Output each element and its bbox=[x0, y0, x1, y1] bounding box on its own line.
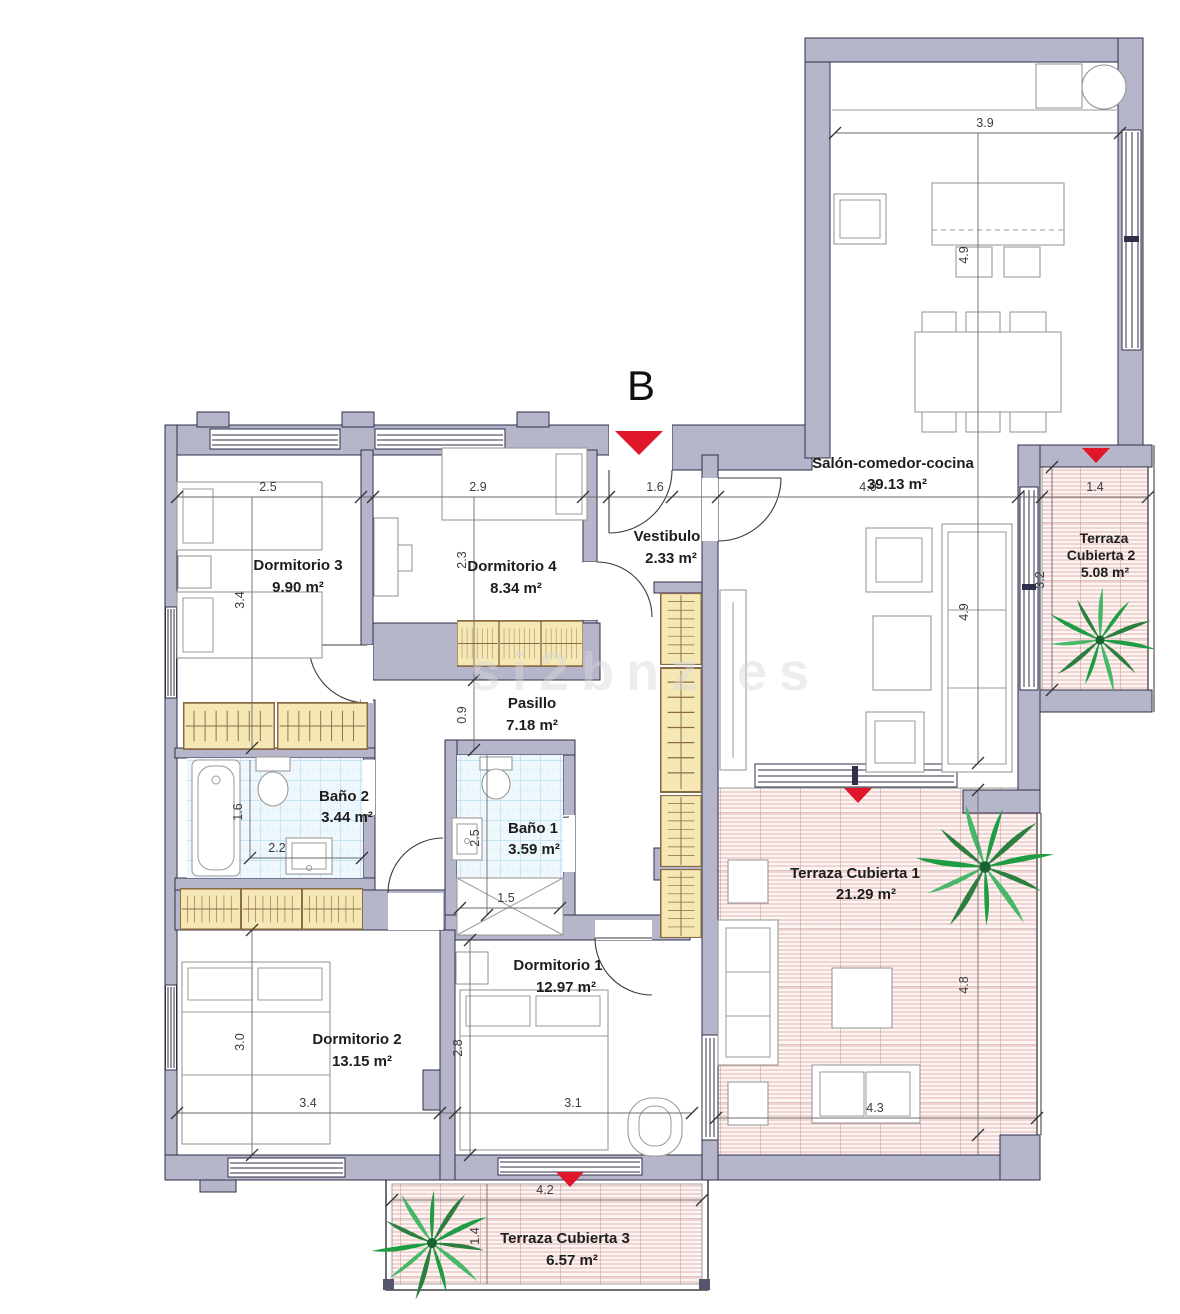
dim-dorm1-height: 2.8 bbox=[451, 1039, 465, 1056]
bed-dorm3-1 bbox=[177, 482, 322, 550]
svg-text:3.44 m²: 3.44 m² bbox=[321, 809, 373, 826]
dining-table bbox=[915, 312, 1061, 432]
kitchen-sink-icon bbox=[1082, 65, 1126, 109]
svg-text:Terraza Cubierta 1: Terraza Cubierta 1 bbox=[790, 865, 920, 882]
svg-text:Salón-comedor-cocina: Salón-comedor-cocina bbox=[812, 455, 974, 472]
sofa-salon bbox=[942, 524, 1012, 772]
dim-terraza1-height: 4.8 bbox=[957, 976, 971, 993]
floor-plan-svg: 2.5 2.9 1.6 4.0 1.4 3.4 3.0 2.3 0.9 2.5 … bbox=[0, 0, 1180, 1314]
armchair-salon-1 bbox=[866, 528, 932, 592]
svg-text:Terraza Cubierta 3: Terraza Cubierta 3 bbox=[500, 1230, 630, 1247]
svg-text:Vestibulo: Vestibulo bbox=[634, 528, 701, 545]
wardrobe-dorm2 bbox=[180, 889, 240, 929]
window-dorm2-left bbox=[166, 985, 177, 1070]
dim-dorm2-width: 3.4 bbox=[299, 1096, 316, 1110]
window-dorm1-right bbox=[702, 1035, 718, 1140]
svg-text:5.08 m²: 5.08 m² bbox=[1081, 564, 1130, 580]
svg-text:Cubierta 2: Cubierta 2 bbox=[1067, 547, 1136, 563]
window-dorm3-left bbox=[166, 607, 177, 698]
window-dorm4 bbox=[375, 429, 505, 449]
window-dorm2-bottom bbox=[228, 1158, 345, 1177]
svg-text:9.90 m²: 9.90 m² bbox=[272, 579, 324, 596]
dim-terraza3-width: 4.2 bbox=[536, 1183, 553, 1197]
nightstand-dorm1 bbox=[456, 952, 488, 984]
dim-dorm3-width: 2.5 bbox=[259, 480, 276, 494]
dim-dorm1-width: 3.1 bbox=[564, 1096, 581, 1110]
dim-terraza2-width: 1.4 bbox=[1086, 480, 1103, 494]
svg-text:12.97 m²: 12.97 m² bbox=[536, 979, 596, 996]
svg-text:Pasillo: Pasillo bbox=[508, 695, 556, 712]
window-salon-terraza1 bbox=[755, 764, 957, 787]
kitchen-appliance bbox=[834, 194, 886, 244]
svg-text:Dormitorio 3: Dormitorio 3 bbox=[253, 557, 342, 574]
bed-dorm2 bbox=[182, 962, 330, 1144]
unit-label: B bbox=[627, 362, 655, 409]
svg-text:21.29 m²: 21.29 m² bbox=[836, 886, 896, 903]
dim-vestibulo-width: 1.6 bbox=[646, 480, 663, 494]
dim-terraza2-height: 3.2 bbox=[1033, 571, 1047, 588]
chair-dorm1 bbox=[628, 1098, 682, 1156]
nightstand-dorm3 bbox=[178, 556, 211, 588]
dim-kitchen-width: 3.9 bbox=[976, 116, 993, 130]
armchair-salon-2 bbox=[866, 712, 924, 772]
sink-bano2-icon bbox=[286, 838, 332, 874]
svg-text:Baño 2: Baño 2 bbox=[319, 788, 369, 805]
svg-text:8.34 m²: 8.34 m² bbox=[490, 580, 542, 597]
svg-text:Dormitorio 4: Dormitorio 4 bbox=[467, 558, 557, 575]
svg-text:2.33 m²: 2.33 m² bbox=[645, 550, 697, 567]
window-dorm3 bbox=[210, 429, 340, 449]
svg-text:Dormitorio 1: Dormitorio 1 bbox=[513, 957, 602, 974]
dim-kitchen-height: 4.9 bbox=[957, 246, 971, 263]
svg-text:6.57 m²: 6.57 m² bbox=[546, 1252, 598, 1269]
dim-bano1-height: 2.5 bbox=[468, 829, 482, 846]
dim-bano2-height: 1.6 bbox=[231, 803, 245, 820]
dim-bano2-width: 2.2 bbox=[268, 841, 285, 855]
svg-text:7.18 m²: 7.18 m² bbox=[506, 717, 558, 734]
dim-dorm2-height: 3.0 bbox=[233, 1033, 247, 1050]
svg-text:Baño 1: Baño 1 bbox=[508, 820, 558, 837]
svg-text:Dormitorio 2: Dormitorio 2 bbox=[312, 1031, 401, 1048]
svg-text:39.13 m²: 39.13 m² bbox=[867, 476, 927, 493]
watermark: si2bnz es bbox=[470, 642, 821, 702]
dim-dorm3-height: 3.4 bbox=[233, 591, 247, 608]
shower-icon bbox=[457, 878, 563, 935]
toilet-bano2-icon bbox=[256, 757, 290, 806]
svg-text:Terraza: Terraza bbox=[1080, 530, 1129, 546]
bed-dorm4 bbox=[442, 448, 587, 520]
floor-plan-page: 2.5 2.9 1.6 4.0 1.4 3.4 3.0 2.3 0.9 2.5 … bbox=[0, 0, 1180, 1314]
bed-dorm3-2 bbox=[177, 592, 322, 658]
wardrobe-dorm3 bbox=[184, 703, 275, 749]
svg-text:3.59 m²: 3.59 m² bbox=[508, 841, 560, 858]
dim-terraza3-height: 1.4 bbox=[468, 1227, 482, 1244]
dim-pasillo-height: 0.9 bbox=[455, 706, 469, 723]
coffee-table-salon bbox=[873, 616, 931, 690]
bed-dorm1 bbox=[460, 990, 608, 1150]
dim-salon-height: 4.9 bbox=[957, 603, 971, 620]
toilet-bano1-icon bbox=[480, 757, 512, 799]
dim-bano1-width: 1.5 bbox=[497, 891, 514, 905]
window-kitchen bbox=[1122, 130, 1141, 350]
dim-dorm4-width: 2.9 bbox=[469, 480, 486, 494]
dim-terraza1-width: 4.3 bbox=[866, 1101, 883, 1115]
svg-text:13.15 m²: 13.15 m² bbox=[332, 1053, 392, 1070]
